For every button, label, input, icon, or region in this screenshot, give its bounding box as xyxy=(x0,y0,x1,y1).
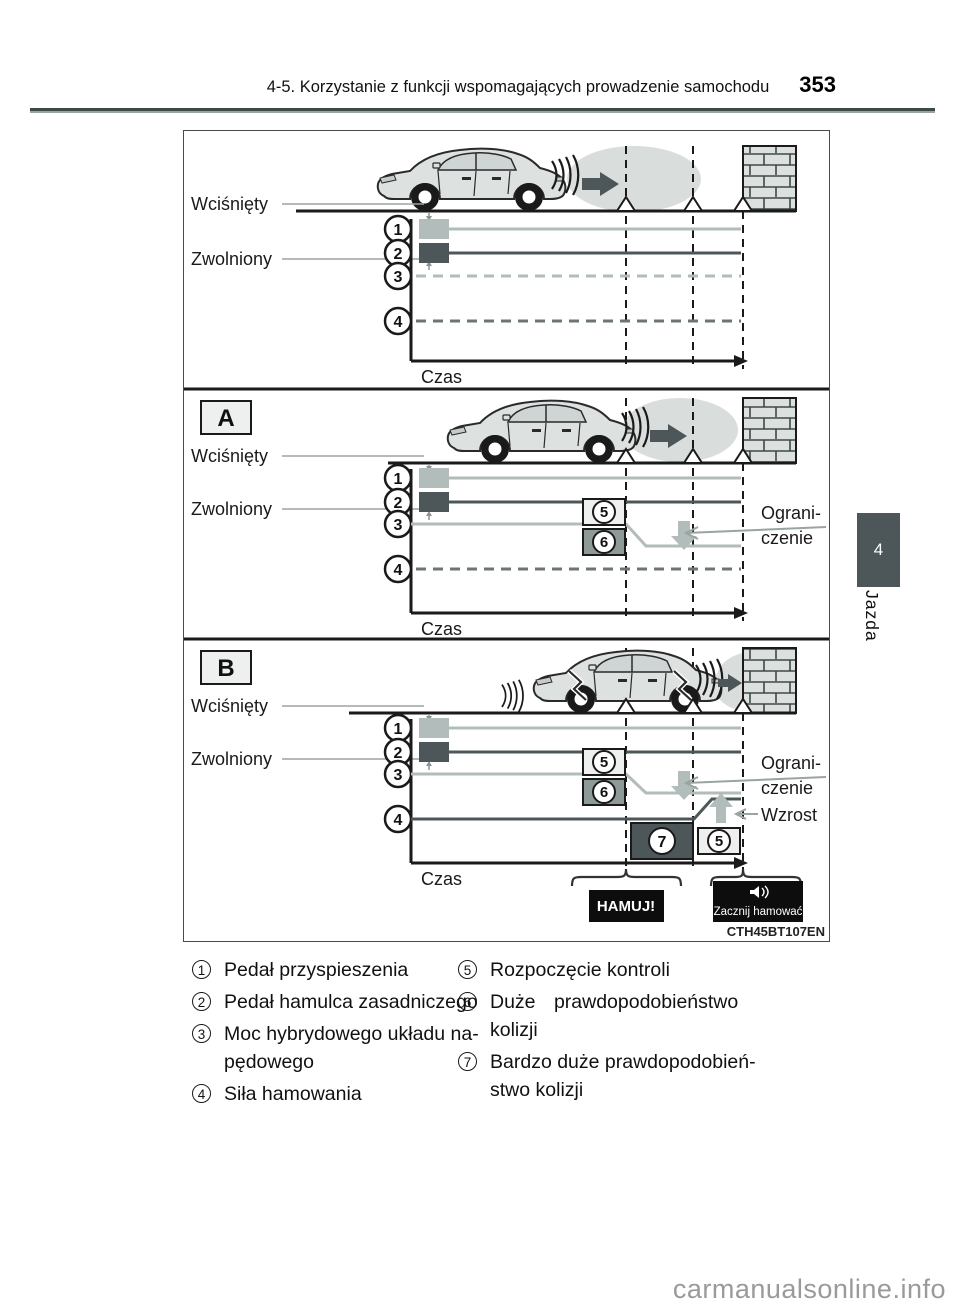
pressed-label: Wciśnięty xyxy=(191,696,268,716)
legend-text-1: Pedał przyspieszenia xyxy=(224,956,408,984)
legend-num-5: 5 xyxy=(458,960,477,979)
marker-2: 2 xyxy=(394,495,403,512)
legend-item-4: 4 Siła hamowania xyxy=(192,1080,492,1108)
diagram-b: B Wciśnięty Zwolniony Czas 1 2 3 xyxy=(184,639,829,939)
diagram-a: A Wciśnięty Zwolniony Czas 1 2 3 5 6 xyxy=(184,389,829,639)
legend-item-2: 2 Pedał hamulca zasadniczego xyxy=(192,988,492,1016)
wall-icon xyxy=(743,648,796,713)
released-label: Zwolniony xyxy=(191,249,272,269)
marker-5: 5 xyxy=(600,754,608,771)
legend-item-7: 7 Bardzo duże prawdopodobień-stwo kolizj… xyxy=(458,1048,838,1104)
time-axis-label: Czas xyxy=(421,367,462,387)
car-icon xyxy=(378,149,566,211)
pressed-label: Wciśnięty xyxy=(191,446,268,466)
page-number: 353 xyxy=(799,72,836,98)
pressed-label: Wciśnięty xyxy=(191,194,268,214)
marker-6: 6 xyxy=(600,534,608,551)
figure-code: CTH45BT107EN xyxy=(727,924,825,939)
legend-item-1: 1 Pedał przyspieszenia xyxy=(192,956,492,984)
limit-label: czenie xyxy=(761,778,813,798)
marker-3: 3 xyxy=(394,767,403,784)
limit-label: Ograni- xyxy=(761,753,821,773)
legend-num-4: 4 xyxy=(192,1084,211,1103)
legend-item-3: 3 Moc hybrydowego układu na-pędowego xyxy=(192,1020,492,1076)
legend-num-1: 1 xyxy=(192,960,211,979)
brace xyxy=(572,869,681,886)
braking-diagram: Wciśnięty Zwolniony Czas 1 2 3 4 A xyxy=(184,131,829,941)
time-axis-label: Czas xyxy=(421,869,462,889)
legend-num-6: 6 xyxy=(458,992,477,1011)
legend-text-3: Moc hybrydowego układu na-pędowego xyxy=(224,1020,479,1076)
section-b-label: B xyxy=(217,655,234,682)
marker-7: 7 xyxy=(658,834,667,851)
limit-label: Ograni- xyxy=(761,503,821,523)
legend-column-left: 1 Pedał przyspieszenia 2 Pedał hamulca z… xyxy=(192,956,492,1112)
marker-2: 2 xyxy=(394,745,403,762)
legend-item-5: 5 Rozpoczęcie kontroli xyxy=(458,956,838,984)
legend-text-6: Duże prawdopodobieństwokolizji xyxy=(490,988,738,1044)
legend-text-2: Pedał hamulca zasadniczego xyxy=(224,988,478,1016)
marker-2: 2 xyxy=(394,246,403,263)
header-rule xyxy=(30,108,935,113)
chapter-label: Jazda xyxy=(861,590,882,642)
wall-icon xyxy=(743,146,796,211)
released-label: Zwolniony xyxy=(191,749,272,769)
watermark: carmanualsonline.info xyxy=(673,1274,946,1305)
marker-3: 3 xyxy=(394,517,403,534)
legend-text-7: Bardzo duże prawdopodobień-stwo kolizji xyxy=(490,1048,756,1104)
brake-message-text: Zacznij hamować xyxy=(714,906,803,918)
marker-1: 1 xyxy=(394,721,403,738)
marker-4: 4 xyxy=(394,812,403,829)
marker-5: 5 xyxy=(600,504,608,521)
page-header: 4-5. Korzystanie z funkcji wspomagającyc… xyxy=(0,72,960,98)
car-icon xyxy=(448,401,636,463)
time-axis-label: Czas xyxy=(421,619,462,639)
wall-icon xyxy=(743,398,796,463)
marker-1: 1 xyxy=(394,471,403,488)
legend-item-6: 6 Duże prawdopodobieństwokolizji xyxy=(458,988,838,1044)
marker-4: 4 xyxy=(394,314,403,331)
brake-alert-text: HAMUJ! xyxy=(597,898,655,915)
vibration-lines-icon xyxy=(502,680,523,712)
legend-num-3: 3 xyxy=(192,1024,211,1043)
released-label: Zwolniony xyxy=(191,499,272,519)
limit-label: czenie xyxy=(761,528,813,548)
diagram-top: Wciśnięty Zwolniony Czas 1 2 3 4 xyxy=(191,146,796,387)
page-title: 4-5. Korzystanie z funkcji wspomagającyc… xyxy=(267,78,770,97)
marker-4: 4 xyxy=(394,562,403,579)
chapter-number: 4 xyxy=(874,540,883,560)
legend-text-4: Siła hamowania xyxy=(224,1080,362,1108)
increase-label: Wzrost xyxy=(761,805,817,825)
figure-box: Wciśnięty Zwolniony Czas 1 2 3 4 A xyxy=(183,130,830,942)
legend-num-2: 2 xyxy=(192,992,211,1011)
marker-1: 1 xyxy=(394,222,403,239)
legend-num-7: 7 xyxy=(458,1052,477,1071)
section-a-label: A xyxy=(217,405,234,432)
legend-column-right: 5 Rozpoczęcie kontroli 6 Duże prawdopodo… xyxy=(458,956,838,1108)
legend-text-5: Rozpoczęcie kontroli xyxy=(490,956,670,984)
marker-5: 5 xyxy=(715,833,723,850)
marker-3: 3 xyxy=(394,269,403,286)
marker-6: 6 xyxy=(600,784,608,801)
chapter-tab: 4 xyxy=(857,513,900,587)
